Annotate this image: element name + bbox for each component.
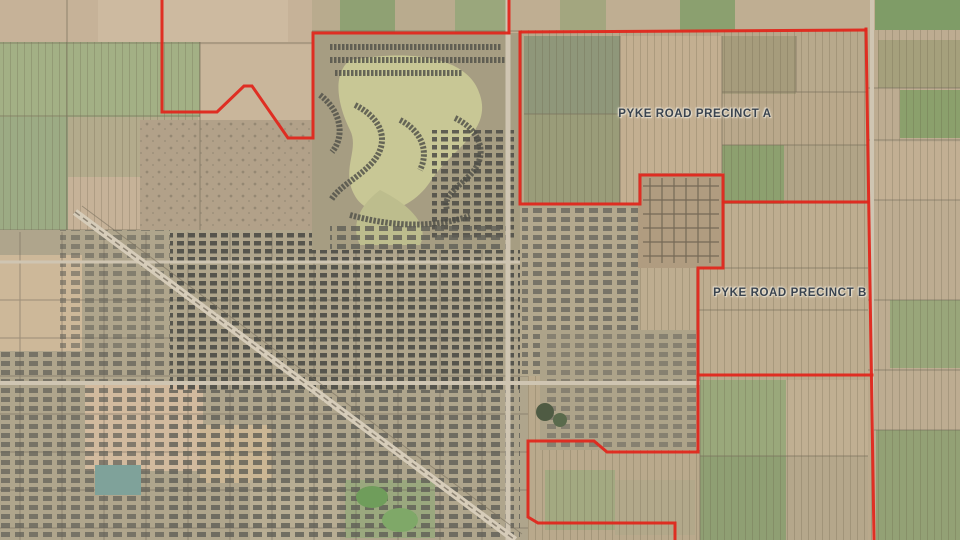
boundary-precinct-a-top [520,30,866,32]
precinct-a-label: PYKE ROAD PRECINCT A [618,108,771,120]
boundary-east-edge [866,29,874,540]
precinct-boundary-overlay [0,0,960,540]
precinct-boundary-lines [162,0,874,540]
aerial-map: PYKE ROAD PRECINCT A PYKE ROAD PRECINCT … [0,0,960,540]
boundary-west-arm [162,0,509,138]
precinct-b-label: PYKE ROAD PRECINCT B [713,287,867,299]
